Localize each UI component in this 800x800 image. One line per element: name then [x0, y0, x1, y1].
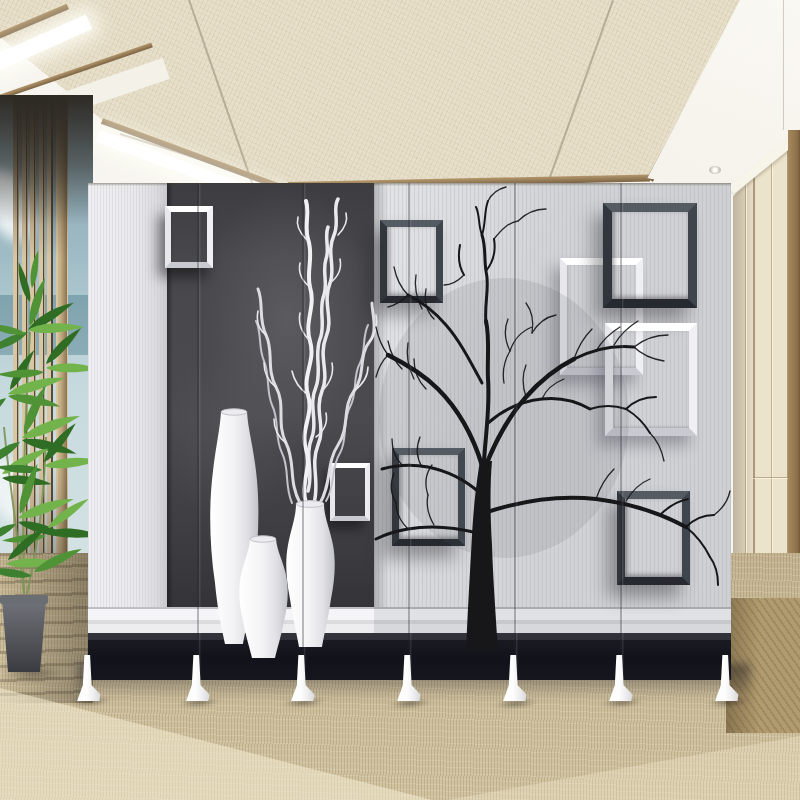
plant-pot [0, 595, 48, 672]
wall-groove [753, 150, 755, 600]
panel-seam [197, 183, 199, 680]
folding-screen [88, 183, 731, 680]
wall-groove-horizontal [753, 477, 789, 478]
downlight-icon [709, 166, 721, 174]
wall-groove [771, 142, 772, 600]
box-frame-white-on-charcoal [165, 206, 213, 268]
panel-seam [408, 183, 410, 680]
window-soffit [0, 95, 93, 225]
white-vases [200, 403, 350, 671]
screen-top-edge [88, 183, 731, 186]
wall-groove [745, 154, 746, 600]
plant-leaves [0, 250, 101, 585]
ceiling-line [783, 0, 784, 130]
vase-medium [286, 501, 334, 647]
panel-seam [620, 183, 622, 680]
ceiling [0, 0, 800, 196]
panel-seam [514, 183, 516, 680]
panel-seam [302, 183, 304, 680]
black-tree [374, 183, 731, 653]
mural-white-section [88, 183, 167, 607]
room-scene [0, 0, 800, 800]
door-frame [788, 130, 800, 615]
